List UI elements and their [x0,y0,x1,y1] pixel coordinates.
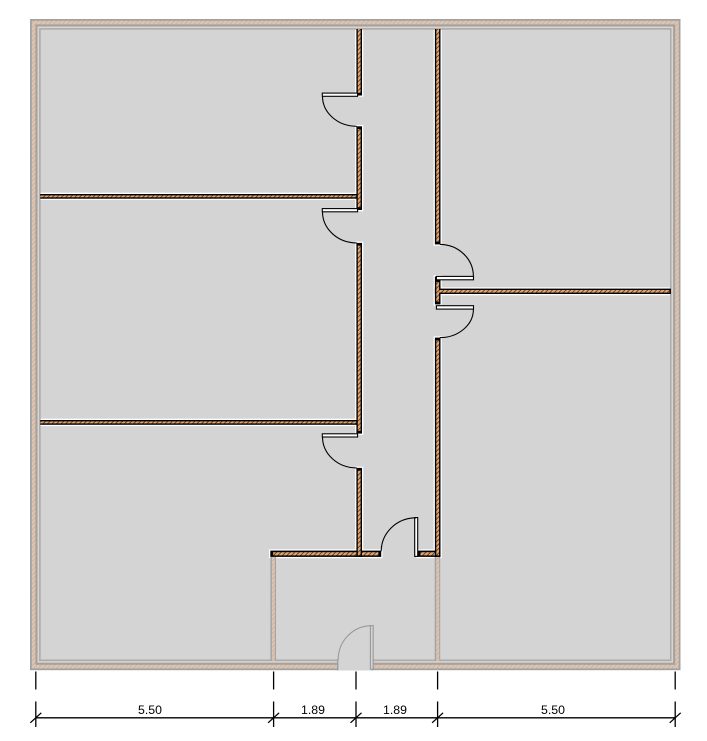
svg-text:5.50: 5.50 [138,703,162,717]
svg-text:1.89: 1.89 [383,703,407,717]
svg-text:5.50: 5.50 [541,703,565,717]
svg-text:1.89: 1.89 [301,703,325,717]
